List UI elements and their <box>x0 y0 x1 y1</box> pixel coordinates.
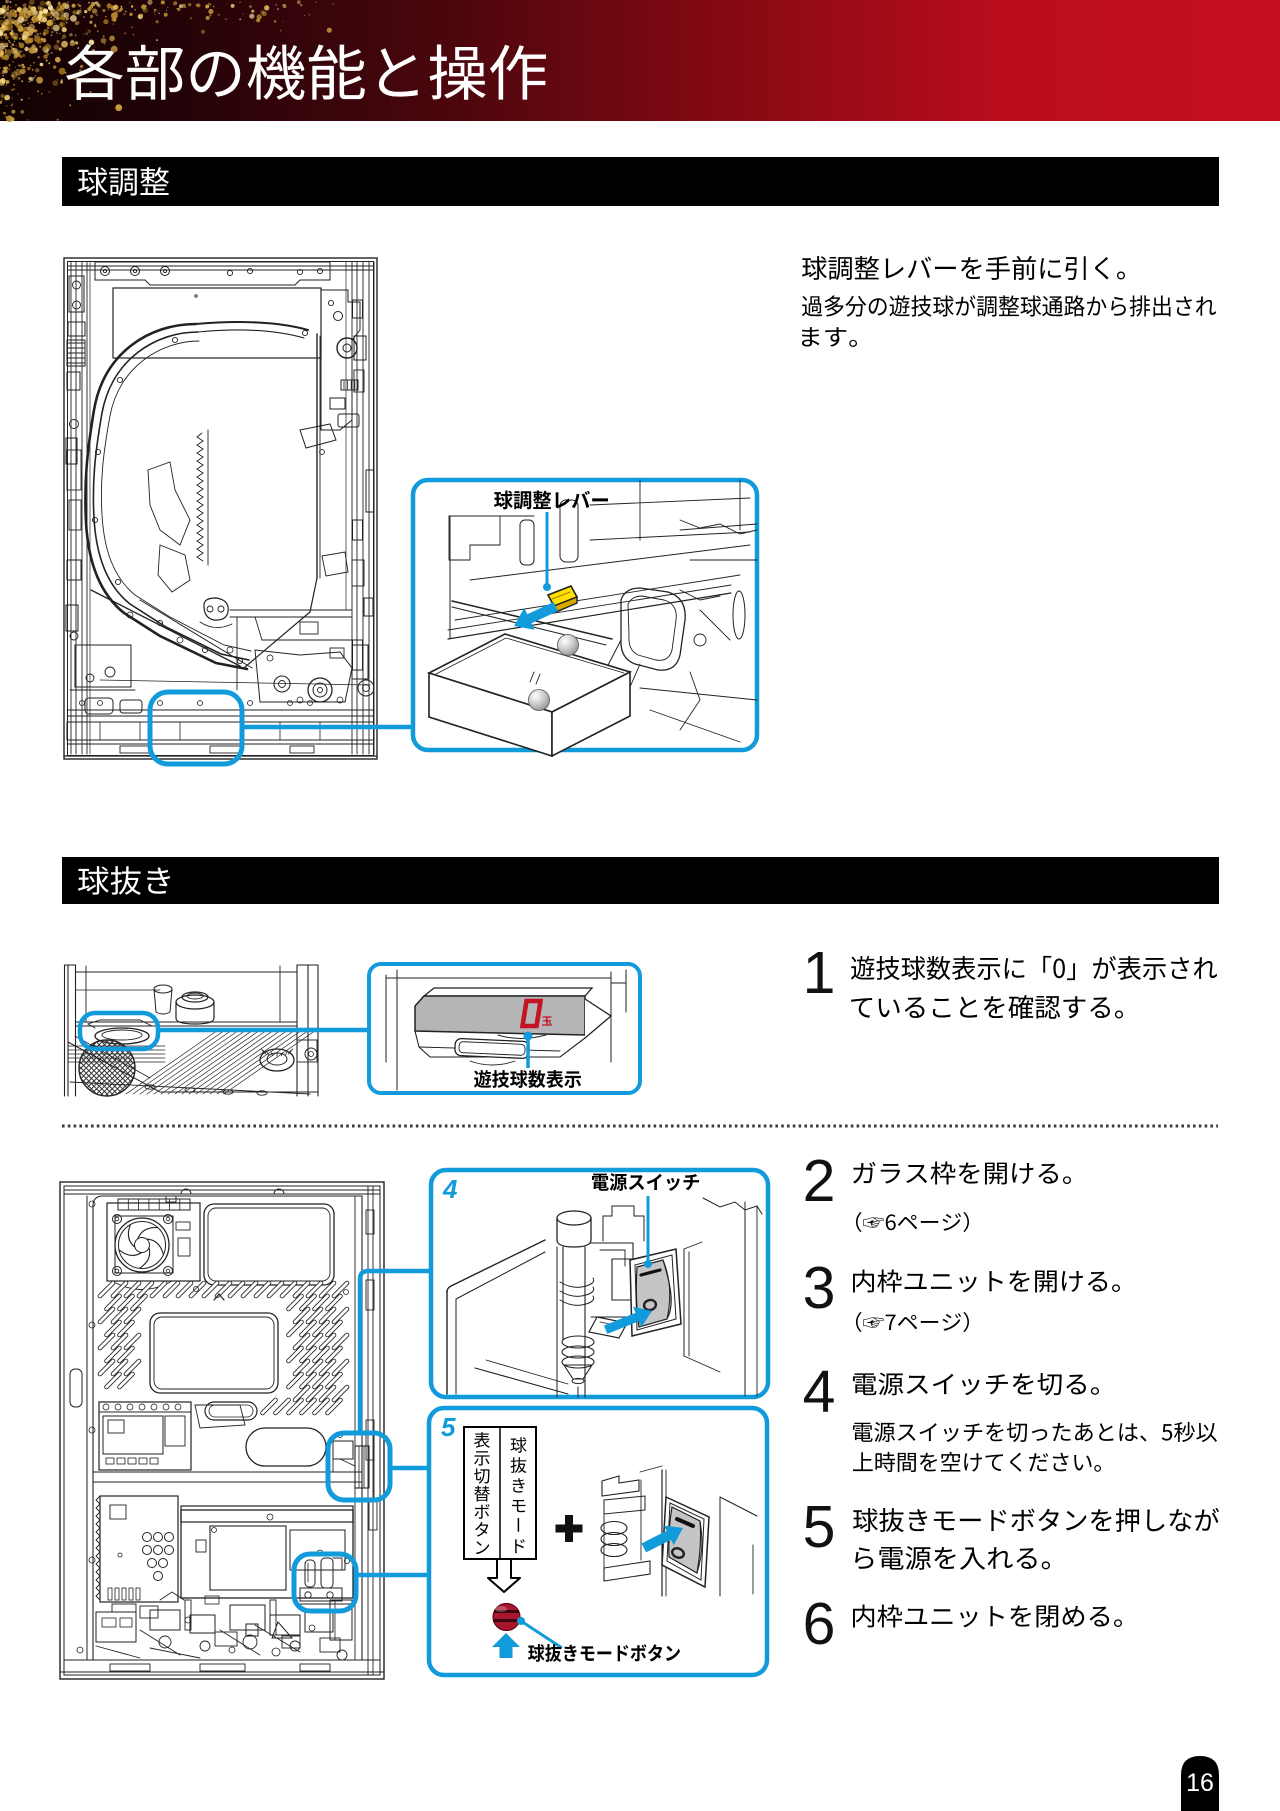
svg-text:6: 6 <box>803 1591 836 1657</box>
svg-text:4: 4 <box>803 1359 836 1425</box>
svg-text:2: 2 <box>803 1148 836 1214</box>
svg-text:1: 1 <box>803 940 836 1006</box>
svg-text:16: 16 <box>1186 1769 1214 1797</box>
svg-text:5: 5 <box>803 1494 836 1560</box>
svg-text:5: 5 <box>441 1412 456 1442</box>
svg-text:4: 4 <box>442 1174 458 1204</box>
svg-text:3: 3 <box>803 1255 836 1321</box>
